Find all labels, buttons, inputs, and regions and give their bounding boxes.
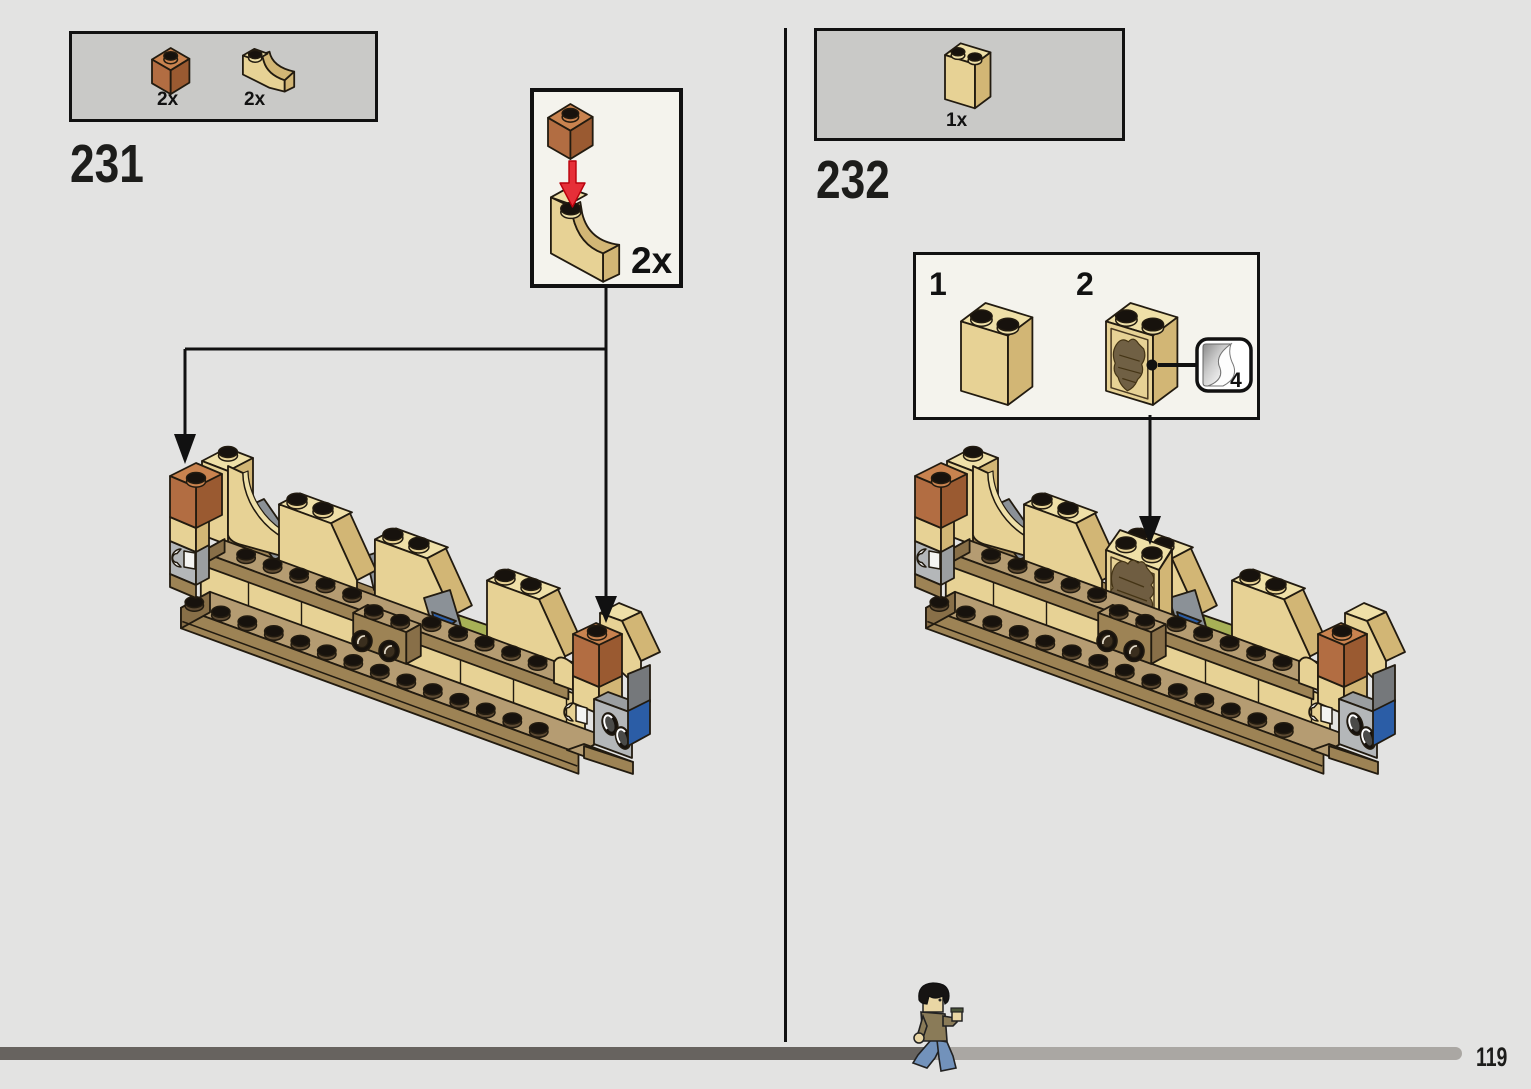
svg-text:4: 4 (1230, 369, 1242, 392)
